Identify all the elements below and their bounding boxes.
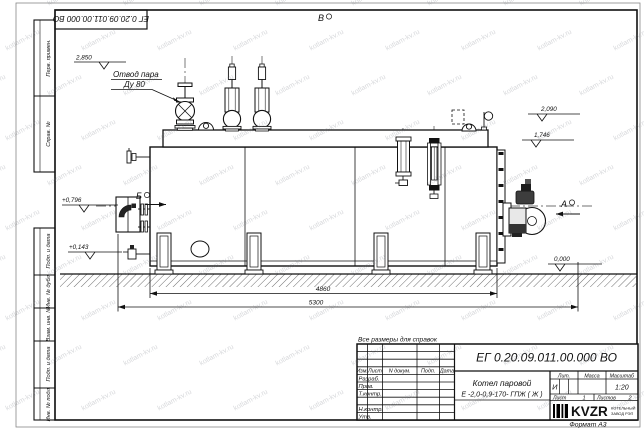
dim-overall-length: 5300 <box>309 300 324 307</box>
stamp-inv-dubl: Инв. № дубл. <box>46 274 52 308</box>
elevation-2090: 2,090 <box>540 106 557 113</box>
support-leg <box>245 233 263 274</box>
tb-scale-value: 1:20 <box>615 385 629 392</box>
hidden-component <box>452 110 464 124</box>
tb-col-podp: Подп. <box>421 368 435 374</box>
tb-lit-value: И <box>552 383 558 392</box>
tb-sheet-value: 1 <box>582 395 585 401</box>
dim-body-length: 4860 <box>316 286 331 293</box>
steam-outlet-valve <box>175 83 195 130</box>
stamp-sprav-no: Справ. № <box>46 121 52 146</box>
tb-row-razrab: Разраб. <box>359 376 380 382</box>
support-leg <box>474 233 492 274</box>
boiler-side-view <box>116 64 546 274</box>
stamp-vzam-inv: Взам. инв. № <box>46 307 52 342</box>
elevation-0143: +0,143 <box>69 244 89 251</box>
format-label: Формат А3 <box>569 422 606 429</box>
top-stamp-number: ЕГ 0.20.09.011.00.000 ВО <box>52 14 149 23</box>
tb-doc-number: ЕГ 0.20.09.011.00.000 ВО <box>476 351 617 365</box>
tb-scale-label: Масштаб <box>610 373 635 379</box>
view-label-b-left: Б <box>136 191 142 201</box>
tb-lit-label: Лит. <box>557 373 570 379</box>
tb-row-nkontr: Н.контр. <box>359 407 384 413</box>
elevation-2850: 2,850 <box>75 55 92 62</box>
tb-sheets-label: Листов <box>596 395 616 401</box>
manhole <box>191 241 209 257</box>
burner <box>503 179 546 237</box>
tb-col-ndokum: N докум. <box>389 368 411 374</box>
tb-col-list: Лист <box>367 368 382 374</box>
stamp-podp-data-2: Подп. и дата <box>46 346 52 381</box>
elevation-0000: 0,000 <box>554 256 570 263</box>
safety-valve <box>223 64 241 131</box>
tb-row-prov: Пров. <box>359 384 374 390</box>
front-door-box <box>116 197 150 232</box>
siphon-tube-fitting <box>482 112 493 130</box>
company-sub-1: КОТЕЛЬНЫЙ <box>611 406 636 411</box>
steam-outlet-callout: Отвод пара Ду 80 <box>111 70 180 102</box>
steam-outlet-label-2: Ду 80 <box>123 80 145 89</box>
ground-hatching <box>60 274 637 287</box>
drawing-sheet-svg: ЕГ 0.20.09.011.00.000 ВО Перв. примен. С… <box>0 0 644 430</box>
support-leg <box>155 233 173 274</box>
water-level-gauge-2 <box>428 138 442 199</box>
tb-sheet-label: Лист <box>552 395 567 401</box>
title-block: Изм. Лист N докум. Подп. Дата Разраб. Пр… <box>356 344 638 420</box>
company-name: KVZR <box>571 404 608 419</box>
view-label-a-right: А <box>560 199 567 209</box>
reference-note: Все размеры для справок <box>358 336 438 344</box>
tb-row-utv: Утв. <box>358 414 372 420</box>
side-stamps: Перв. примен. Справ. № Подп. и дата Инв.… <box>34 20 55 421</box>
stamp-inv-podl: Инв. № подл. <box>46 387 52 422</box>
stamp-podp-data-1: Подп. и дата <box>46 233 52 268</box>
top-stamp: ЕГ 0.20.09.011.00.000 ВО <box>52 10 149 29</box>
tb-product-name-2: Е -2,0-0,9-170- ГПЖ ( Ж ) <box>461 392 542 399</box>
elevation-1746: 1,746 <box>534 132 550 139</box>
tb-mass-label: Масса <box>584 373 599 379</box>
drawing-sheet: ЕГ 0.20.09.011.00.000 ВО Перв. примен. С… <box>0 0 644 430</box>
safety-valve <box>253 64 271 131</box>
tb-col-data: Дата <box>439 368 454 374</box>
tb-row-tkontr: Т.контр. <box>359 392 382 398</box>
tb-col-izm: Изм. <box>356 368 368 374</box>
company-sub-2: ЗАВОД РЭП <box>611 411 633 416</box>
tb-product-name-1: Котел паровой <box>473 379 532 388</box>
elevation-0796: +0,796 <box>62 197 82 204</box>
steam-outlet-label-1: Отвод пара <box>113 70 159 79</box>
support-leg <box>372 233 390 274</box>
stamp-perv-primen: Перв. примен. <box>46 39 52 76</box>
view-label-v-top: В <box>318 13 324 23</box>
